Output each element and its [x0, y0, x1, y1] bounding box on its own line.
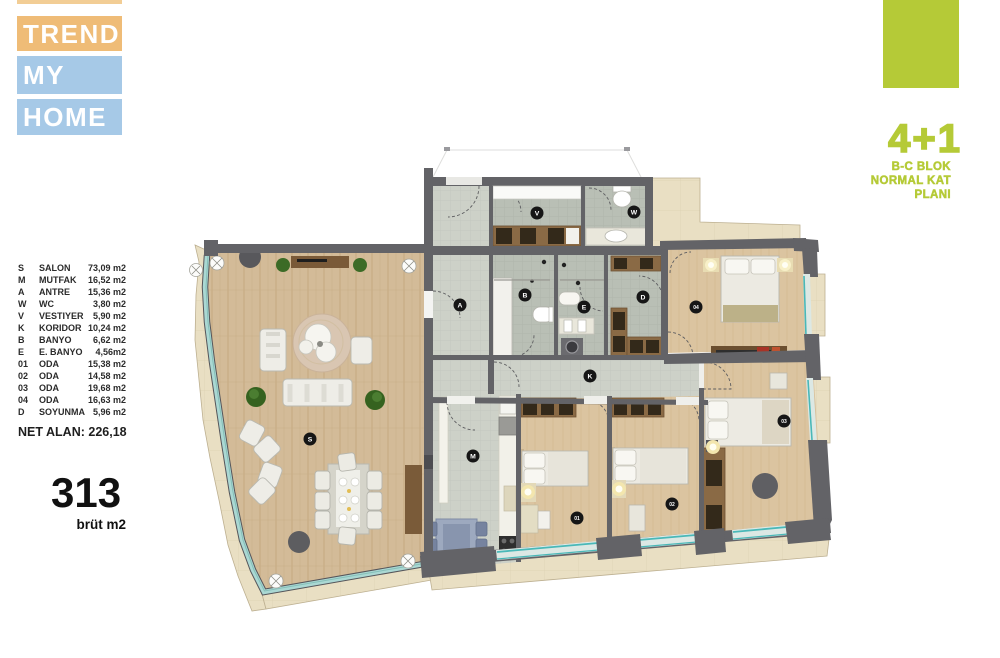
- svg-text:ODA: ODA: [39, 371, 60, 381]
- svg-text:W: W: [18, 299, 27, 309]
- svg-text:S: S: [308, 437, 313, 444]
- svg-text:KORIDOR: KORIDOR: [39, 323, 82, 333]
- svg-text:ODA: ODA: [39, 395, 60, 405]
- svg-text:SALON: SALON: [39, 263, 71, 273]
- svg-text:02: 02: [669, 502, 675, 508]
- svg-text:6,62 m2: 6,62 m2: [93, 335, 126, 345]
- svg-text:MY: MY: [23, 60, 65, 90]
- svg-text:14,58 m2: 14,58 m2: [88, 371, 126, 381]
- svg-text:E. BANYO: E. BANYO: [39, 347, 83, 357]
- svg-text:ODA: ODA: [39, 383, 60, 393]
- svg-text:VESTIYER: VESTIYER: [39, 311, 84, 321]
- svg-text:M: M: [18, 275, 26, 285]
- svg-text:W: W: [631, 210, 638, 217]
- svg-text:04: 04: [693, 305, 699, 311]
- svg-text:BANYO: BANYO: [39, 335, 72, 345]
- svg-text:73,09 m2: 73,09 m2: [88, 263, 126, 273]
- svg-text:19,68 m2: 19,68 m2: [88, 383, 126, 393]
- svg-text:4+1: 4+1: [888, 117, 962, 161]
- svg-text:16,52 m2: 16,52 m2: [88, 275, 126, 285]
- svg-text:K: K: [18, 323, 25, 333]
- svg-text:WC: WC: [39, 299, 54, 309]
- svg-text:01: 01: [574, 516, 580, 522]
- svg-text:16,63 m2: 16,63 m2: [88, 395, 126, 405]
- svg-text:A: A: [18, 287, 25, 297]
- svg-text:ODA: ODA: [39, 359, 60, 369]
- svg-text:04: 04: [18, 395, 28, 405]
- svg-text:V: V: [535, 211, 540, 218]
- svg-text:5,90 m2: 5,90 m2: [93, 311, 126, 321]
- svg-text:02: 02: [18, 371, 28, 381]
- svg-text:PLANI: PLANI: [915, 189, 952, 201]
- svg-text:S: S: [18, 263, 24, 273]
- svg-text:TREND: TREND: [23, 19, 120, 49]
- svg-text:HOME: HOME: [23, 102, 107, 132]
- svg-text:M: M: [470, 454, 476, 461]
- svg-text:B: B: [523, 293, 528, 300]
- svg-text:15,38 m2: 15,38 m2: [88, 359, 126, 369]
- svg-text:NORMAL KAT: NORMAL KAT: [871, 175, 951, 187]
- svg-text:A: A: [458, 303, 463, 310]
- svg-text:03: 03: [781, 419, 787, 425]
- svg-text:B-C BLOK: B-C BLOK: [892, 161, 952, 173]
- svg-text:ANTRE: ANTRE: [39, 287, 70, 297]
- svg-text:01: 01: [18, 359, 28, 369]
- svg-text:MUTFAK: MUTFAK: [39, 275, 77, 285]
- svg-text:10,24 m2: 10,24 m2: [88, 323, 126, 333]
- svg-text:D: D: [18, 407, 25, 417]
- svg-text:NET ALAN: 226,18: NET ALAN: 226,18: [18, 425, 127, 439]
- svg-text:K: K: [588, 374, 593, 381]
- svg-text:B: B: [18, 335, 25, 345]
- svg-text:4,56m2: 4,56m2: [95, 347, 126, 357]
- svg-text:313: 313: [51, 469, 121, 516]
- svg-text:3,80 m2: 3,80 m2: [93, 299, 126, 309]
- svg-text:E: E: [582, 305, 587, 312]
- svg-text:15,36 m2: 15,36 m2: [88, 287, 126, 297]
- svg-text:V: V: [18, 311, 24, 321]
- svg-text:D: D: [641, 295, 646, 302]
- svg-text:5,96 m2: 5,96 m2: [93, 407, 126, 417]
- svg-text:SOYUNMA: SOYUNMA: [39, 407, 86, 417]
- svg-text:brüt m2: brüt m2: [76, 517, 126, 532]
- svg-text:E: E: [18, 347, 24, 357]
- svg-text:03: 03: [18, 383, 28, 393]
